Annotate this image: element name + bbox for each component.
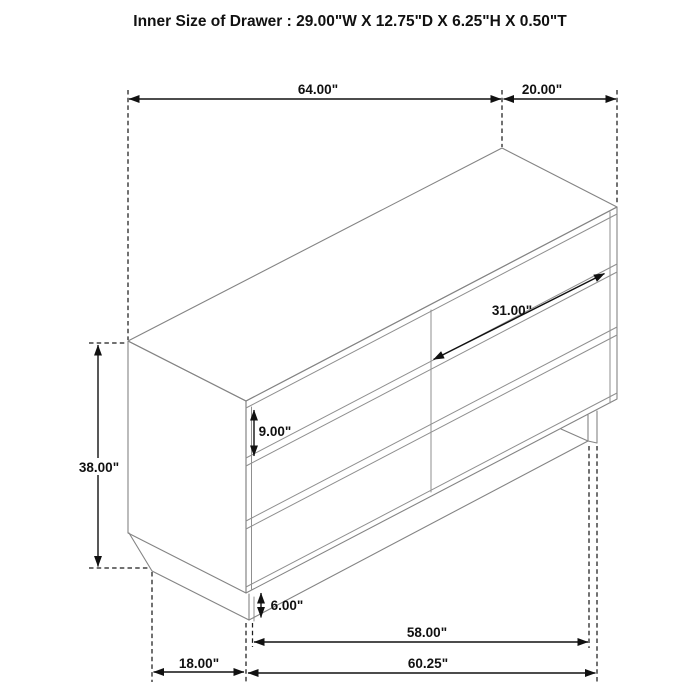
dim-label-bottom-inner-width: 58.00" xyxy=(407,625,447,640)
dim-label-drawer-height: 9.00" xyxy=(259,424,292,439)
right-leg xyxy=(561,411,597,443)
base-plinth xyxy=(129,441,588,621)
dim-label-overall-width: 64.00" xyxy=(298,82,338,97)
dim-label-bottom-depth: 18.00" xyxy=(179,656,219,671)
dim-label-base-height: 6.00" xyxy=(271,598,304,613)
dresser-top-face xyxy=(128,148,617,401)
dim-label-bottom-outer-width: 60.25" xyxy=(408,656,448,671)
dresser-outline xyxy=(128,148,617,621)
dim-label-overall-depth: 20.00" xyxy=(522,82,562,97)
dresser-left-face xyxy=(128,341,246,593)
dim-label-overall-height: 38.00" xyxy=(79,460,119,475)
dimension-lines xyxy=(98,99,616,673)
dim-label-drawer-width: 31.00" xyxy=(492,303,532,318)
diagram-title: Inner Size of Drawer : 29.00"W X 12.75"D… xyxy=(133,13,567,30)
dresser-dimension-drawing: Inner Size of Drawer : 29.00"W X 12.75"D… xyxy=(0,0,700,700)
extension-lines xyxy=(89,90,617,682)
dimension-diagram-page: Inner Size of Drawer : 29.00"W X 12.75"D… xyxy=(0,0,700,700)
